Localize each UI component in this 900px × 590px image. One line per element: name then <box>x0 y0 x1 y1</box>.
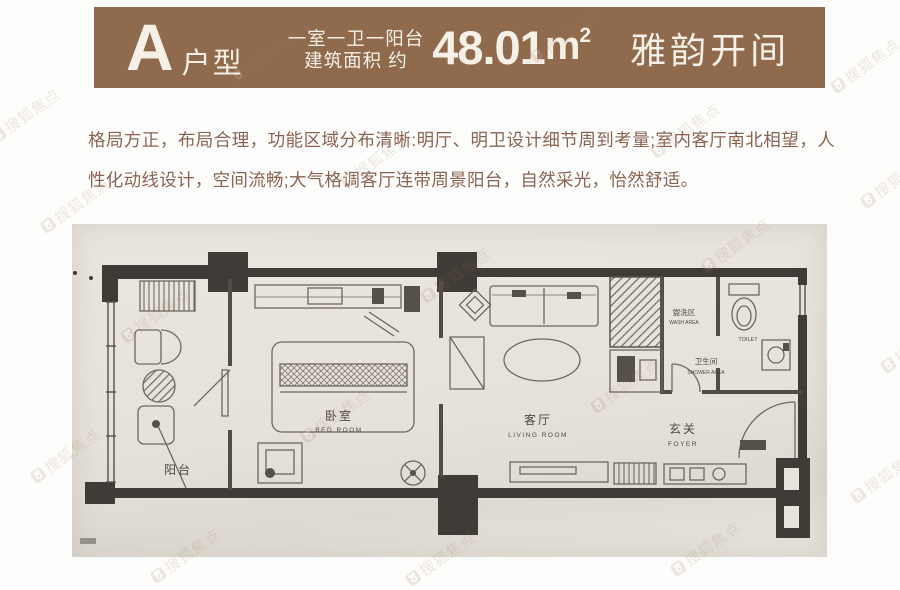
unit-area-value: 48.01 <box>432 24 545 71</box>
unit-spec-line1: 一室一卫一阳台 <box>288 28 425 50</box>
unit-area: 48.01 m 2 <box>432 24 590 71</box>
balcony-rack <box>140 281 195 311</box>
unit-spec: 一室一卫一阳台 建筑面积 约 <box>288 28 425 72</box>
label-wash-zh: 盥洗区 <box>673 307 696 317</box>
watermark: 搜狐焦点 <box>0 84 65 148</box>
label-toilet-en: TOILET <box>738 337 758 343</box>
sohu-focus-logo-icon <box>848 485 867 504</box>
unit-area-unit: m <box>545 24 580 68</box>
label-wash-en: WASH AREA <box>669 320 699 326</box>
sohu-focus-logo-icon <box>148 565 167 584</box>
bedroom-desk <box>258 443 302 483</box>
label-shower-zh: 卫生间 <box>695 356 718 366</box>
rug <box>504 339 580 381</box>
toilet <box>732 298 756 330</box>
unit-area-exponent: 2 <box>579 25 590 46</box>
sohu-focus-logo-icon <box>878 355 897 374</box>
unit-header: A 户型 一室一卫一阳台 建筑面积 约 48.01 m 2 雅韵开间 <box>94 7 825 88</box>
label-foyer-en: FOYER <box>668 441 698 448</box>
watermark: 搜狐焦点 <box>846 444 900 508</box>
label-living-en: LIVING ROOM <box>508 432 568 439</box>
watermark-text: 搜狐焦点 <box>840 34 900 88</box>
watermark-text: 搜狐焦点 <box>870 149 900 203</box>
watermark: 搜狐焦点 <box>856 149 900 213</box>
sohu-focus-logo-icon <box>668 558 687 577</box>
foyer-cabinet <box>664 464 746 484</box>
sohu-focus-logo-icon <box>0 125 8 144</box>
floorplan-svg: 阳台 卧室 BED ROOM 客厅 LIVING ROOM 玄关 FOYER 盥… <box>72 224 827 557</box>
utility-shaft <box>610 277 662 347</box>
label-foyer-zh: 玄关 <box>669 421 697 436</box>
label-bedroom-zh: 卧室 <box>325 408 353 423</box>
watermark: 搜狐焦点 <box>826 34 900 98</box>
watermark-text: 搜狐焦点 <box>890 314 900 368</box>
sohu-focus-logo-icon <box>858 190 877 209</box>
sohu-focus-logo-icon <box>38 215 57 234</box>
side-table <box>459 289 490 320</box>
entry-frame-slot <box>784 468 799 490</box>
balcony-table <box>143 370 175 402</box>
sohu-focus-logo-icon <box>403 568 422 587</box>
window-lines <box>106 285 805 482</box>
unit-description: 格局方正，布局合理，功能区域分布清晰:明厅、明卫设计细节周到考量;室内客厅南北相… <box>88 120 835 200</box>
unit-type-letter: A <box>126 19 174 75</box>
label-shower-en: SHOWER AREA <box>687 370 725 376</box>
floorplan-photo: 阳台 卧室 BED ROOM 客厅 LIVING ROOM 玄关 FOYER 盥… <box>72 224 827 557</box>
entry-frame-slot <box>784 506 799 528</box>
sohu-focus-logo-icon <box>28 465 47 484</box>
label-balcony-zh: 阳台 <box>164 462 192 477</box>
unit-name: 雅韵开间 <box>630 22 790 74</box>
watermark-text: 搜狐焦点 <box>860 444 900 498</box>
doormat <box>614 463 656 484</box>
sohu-focus-logo-icon <box>828 75 847 94</box>
balcony-chair <box>135 330 161 364</box>
tv-cabinet <box>510 462 608 482</box>
toilet-tank <box>729 284 759 295</box>
photo-mark <box>80 538 96 544</box>
label-living-zh: 客厅 <box>524 412 552 427</box>
bed-pillow-band <box>280 364 407 386</box>
watermark: 搜狐焦点 <box>876 314 900 378</box>
unit-spec-line2: 建筑面积 约 <box>288 50 425 72</box>
unit-type-label: 户型 <box>182 40 244 82</box>
label-bedroom-en: BED ROOM <box>315 427 362 434</box>
watermark-text: 搜狐焦点 <box>0 84 64 138</box>
